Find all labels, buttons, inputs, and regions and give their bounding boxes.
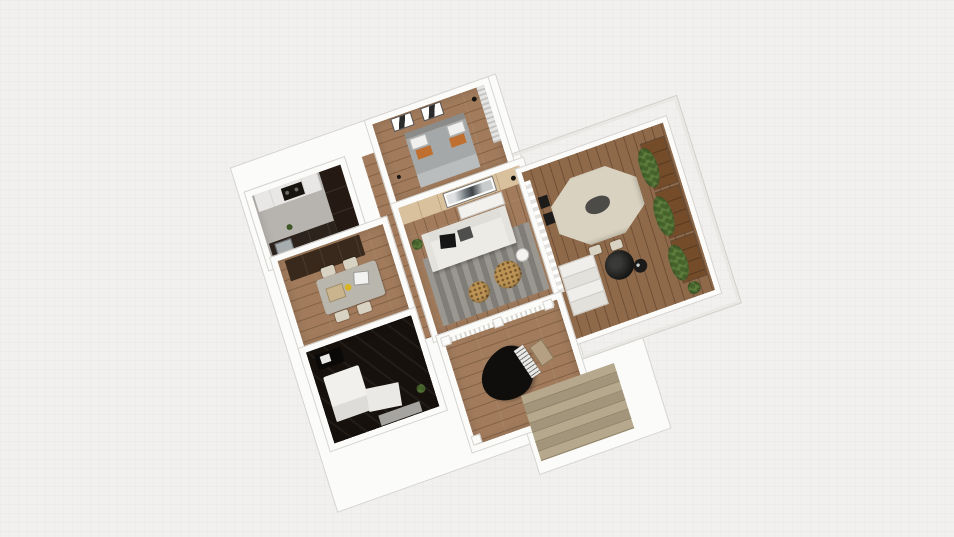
- column: [472, 435, 482, 445]
- papasan-chair: [601, 246, 638, 284]
- white-dresser: [366, 382, 402, 412]
- sofa-arm: [498, 205, 516, 245]
- small-plant: [416, 383, 427, 394]
- table-tray: [327, 284, 346, 301]
- yellow-bowl: [344, 283, 353, 292]
- balcony-side-table: [632, 257, 649, 275]
- wall-picture: [421, 103, 443, 121]
- floorplan-3d-canvas[interactable]: [0, 0, 954, 537]
- corner-potted-plant: [686, 279, 702, 295]
- desk: [314, 346, 345, 370]
- table-centerpiece: [583, 193, 612, 217]
- wall-picture: [391, 113, 413, 131]
- balcony-steps: [559, 255, 608, 315]
- white-bed: [323, 365, 372, 422]
- floor-lamp: [471, 96, 477, 102]
- floor-lamp: [396, 174, 401, 179]
- outdoor-dark-chair: [538, 195, 551, 209]
- outdoor-octagon-table: [545, 157, 651, 254]
- desk-laptop: [320, 354, 332, 365]
- kitchen-plant: [286, 223, 293, 231]
- black-throw-pillow: [439, 233, 456, 249]
- bed-blanket: [332, 395, 372, 422]
- laptop: [354, 272, 368, 285]
